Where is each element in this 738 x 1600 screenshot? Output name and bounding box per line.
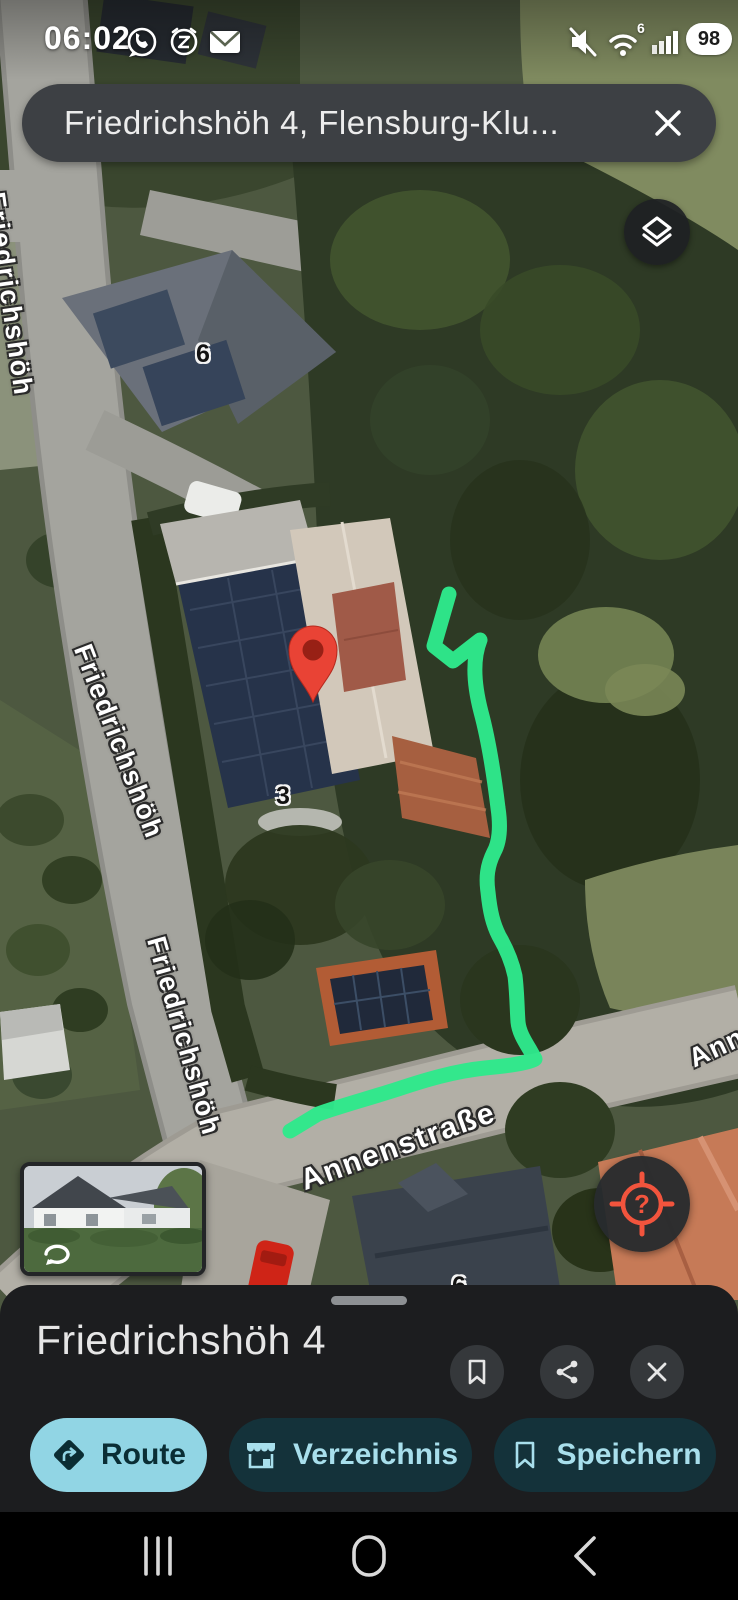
mute-icon — [566, 24, 602, 60]
recents-icon — [134, 1532, 182, 1580]
directory-label: Verzeichnis — [293, 1438, 458, 1472]
signal-icon — [648, 24, 684, 60]
drag-handle[interactable] — [331, 1296, 407, 1305]
android-nav-bar — [0, 1512, 738, 1600]
clock: 06:02 — [44, 20, 131, 57]
locate-question-label: ? — [594, 1156, 690, 1252]
wifi-standard-label: 6 — [637, 20, 645, 36]
back-button[interactable] — [528, 1512, 648, 1600]
maps-app-screen: Friedrichshöh Friedrichshöh Friedrichshö… — [0, 0, 738, 1600]
close-icon — [641, 1356, 673, 1388]
home-button[interactable] — [309, 1512, 429, 1600]
save-label: Speichern — [556, 1438, 701, 1472]
clear-search-button[interactable] — [646, 101, 690, 145]
directory-button[interactable]: Verzeichnis — [229, 1418, 472, 1492]
search-query: Friedrichshöh 4, Flensburg-Klu... — [64, 104, 559, 142]
close-sheet-button[interactable] — [630, 1345, 684, 1399]
mail-icon — [206, 24, 244, 60]
route-label: Route — [101, 1438, 186, 1472]
close-icon — [651, 106, 685, 140]
storefront-icon — [243, 1437, 279, 1473]
map-layers-button[interactable] — [624, 199, 690, 265]
bookmark-icon — [461, 1356, 493, 1388]
battery-indicator: 98 — [686, 23, 732, 55]
route-button[interactable]: Route — [30, 1418, 207, 1492]
bookmark-button[interactable] — [450, 1345, 504, 1399]
share-button[interactable] — [540, 1345, 594, 1399]
house-number: 3 — [276, 782, 290, 811]
whatsapp-icon — [124, 24, 160, 60]
search-bar[interactable]: Friedrichshöh 4, Flensburg-Klu... — [22, 84, 716, 162]
street-view-thumbnail[interactable] — [20, 1162, 206, 1276]
house-number: 6 — [196, 340, 210, 369]
my-location-button[interactable]: ? — [594, 1156, 690, 1252]
home-icon — [345, 1532, 393, 1580]
share-icon — [551, 1356, 583, 1388]
place-title: Friedrichshöh 4 — [36, 1317, 326, 1364]
status-bar: 06:02 6 — [0, 0, 738, 70]
place-bottom-sheet: Friedrichshöh 4 Route — [0, 1285, 738, 1512]
save-button[interactable]: Speichern — [494, 1418, 716, 1492]
back-chevron-icon — [564, 1532, 612, 1580]
bookmark-icon — [508, 1438, 542, 1472]
directions-icon — [51, 1437, 87, 1473]
recents-button[interactable] — [98, 1512, 218, 1600]
alarm-snooze-icon — [166, 24, 202, 60]
layers-icon — [635, 210, 679, 254]
